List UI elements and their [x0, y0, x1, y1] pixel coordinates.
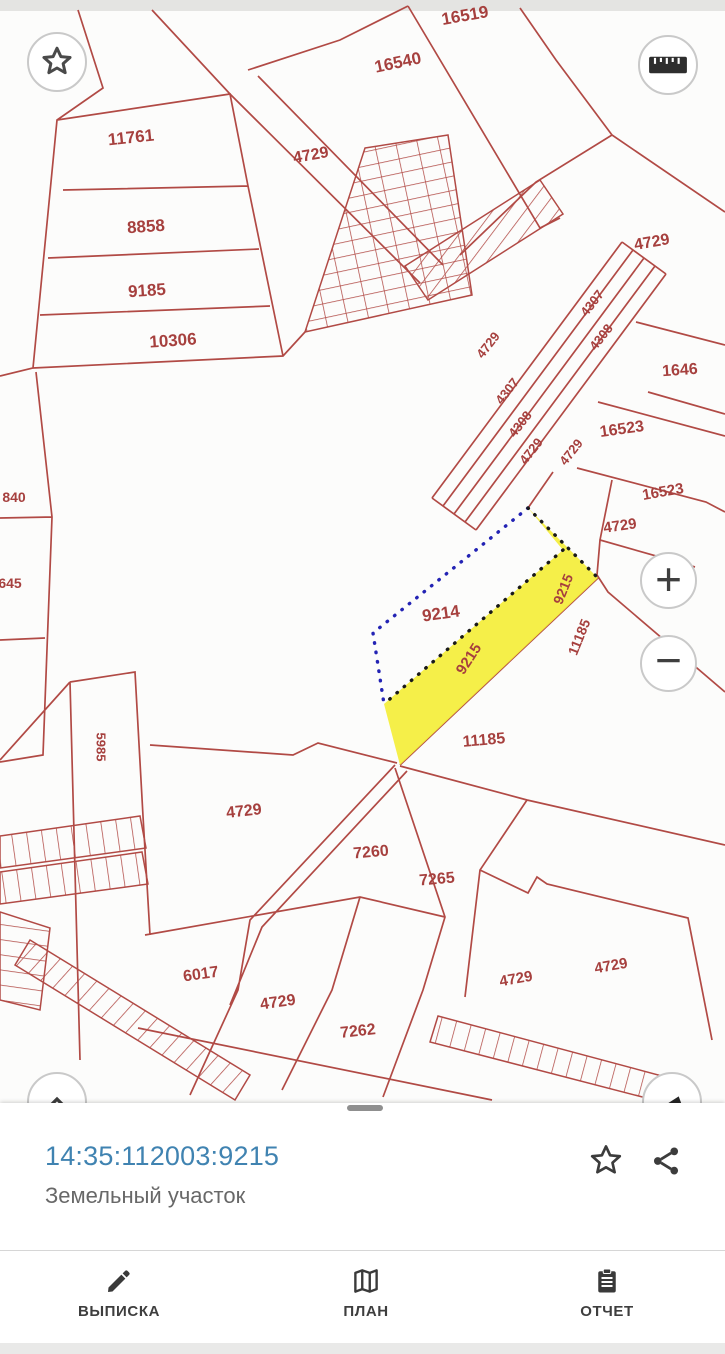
parcel-info-sheet: 14:35:112003:9215 Земельный участок — [0, 1103, 725, 1250]
share-icon — [649, 1144, 683, 1183]
nav-item-otchet[interactable]: ОТЧЕТ — [522, 1251, 692, 1344]
parcel-label: 8858 — [126, 216, 165, 239]
favorite-parcel-button[interactable] — [586, 1143, 626, 1183]
parcel-label: 5985 — [94, 733, 109, 762]
parcel-type-label: Земельный участок — [45, 1183, 245, 1209]
pencil-icon — [104, 1263, 134, 1299]
parcel-label: 4729 — [225, 801, 262, 823]
ruler-icon — [647, 52, 689, 78]
parcel-boundaries-bottomright — [480, 870, 712, 1040]
plus-icon: + — [655, 556, 682, 602]
parcel-label: 7262 — [339, 1021, 376, 1043]
parcel-label: 10306 — [149, 329, 198, 352]
selected-parcel-9215[interactable] — [384, 508, 598, 765]
map-icon — [351, 1263, 381, 1299]
minus-icon: − — [655, 637, 682, 683]
star-outline-icon — [587, 1142, 625, 1185]
parcel-label: 9185 — [127, 280, 166, 303]
hatched-parcel-strip — [430, 1016, 662, 1100]
share-parcel-button[interactable] — [646, 1143, 686, 1183]
star-icon — [39, 44, 75, 80]
nav-label: ПЛАН — [343, 1303, 388, 1320]
sheet-drag-handle[interactable] — [347, 1105, 383, 1111]
bottom-nav: ВЫПИСКА ПЛАН ОТЧЕТ — [0, 1250, 725, 1344]
parcel-label: 645 — [0, 575, 22, 591]
gesture-bar-area — [0, 1343, 725, 1354]
parcel-label: 840 — [2, 489, 25, 505]
measure-button[interactable] — [638, 35, 698, 95]
zoom-out-button[interactable]: − — [640, 635, 697, 692]
parcel-label: 7265 — [418, 869, 455, 890]
hatched-parcel-strip — [305, 135, 472, 332]
parcel-label: 7260 — [352, 842, 389, 863]
cadastral-map[interactable]: 1651916540117614729885891851030647294307… — [0, 0, 725, 1103]
screen: 1651916540117614729885891851030647294307… — [0, 0, 725, 1354]
cadastral-number: 14:35:112003:9215 — [45, 1141, 279, 1172]
parcel-label: 1646 — [662, 361, 699, 381]
parcel-lines-layer — [0, 0, 725, 1103]
nav-item-vypiska[interactable]: ВЫПИСКА — [34, 1251, 204, 1344]
nav-label: ВЫПИСКА — [78, 1303, 160, 1320]
favorites-button[interactable] — [27, 32, 87, 92]
parcel-label: 11185 — [462, 730, 506, 752]
nav-item-plan[interactable]: ПЛАН — [281, 1251, 451, 1344]
clipboard-icon — [592, 1263, 622, 1299]
nav-label: ОТЧЕТ — [580, 1303, 634, 1320]
zoom-in-button[interactable]: + — [640, 552, 697, 609]
